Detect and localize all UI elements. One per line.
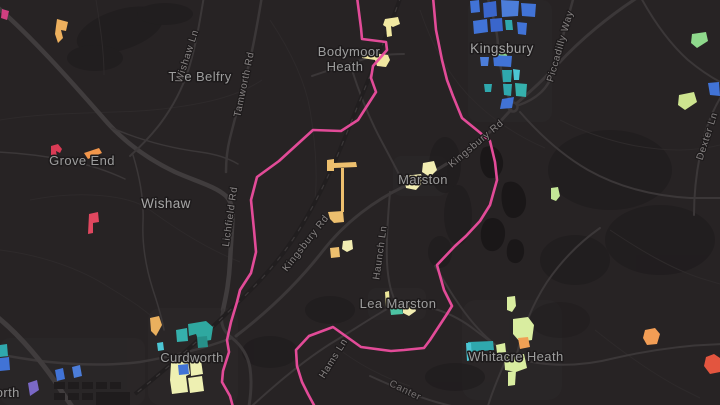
land-parcel[interactable]: [501, 0, 519, 17]
land-parcel[interactable]: [197, 336, 208, 348]
land-parcel[interactable]: [508, 371, 516, 386]
place-label-bodymoor: Bodymoor: [318, 44, 381, 59]
place-label-grove-end: Grove End: [49, 153, 115, 168]
land-parcel[interactable]: [490, 18, 503, 32]
land-parcel[interactable]: [341, 168, 344, 212]
land-parcel[interactable]: [505, 20, 513, 30]
land-parcel[interactable]: [484, 84, 492, 92]
land-parcel[interactable]: [493, 55, 512, 67]
land-parcel[interactable]: [521, 3, 536, 17]
land-parcel[interactable]: [473, 19, 488, 34]
place-label-kingsbury: Kingsbury: [470, 41, 534, 56]
land-parcel[interactable]: [470, 0, 480, 13]
land-parcel[interactable]: [330, 247, 340, 258]
place-label-marston: Marston: [398, 172, 448, 187]
place-label-bodymoor-heath: Heath: [327, 59, 364, 74]
place-label-minworth-partial: worth: [0, 385, 20, 400]
land-parcel[interactable]: [480, 57, 489, 66]
place-label-lea-marston: Lea Marston: [360, 296, 437, 311]
land-parcel[interactable]: [0, 357, 10, 371]
land-parcel[interactable]: [178, 364, 189, 375]
land-parcel[interactable]: [503, 84, 512, 96]
map-canvas[interactable]: Bodymoor Heath Kingsbury The Belfry Grov…: [0, 0, 720, 405]
land-parcel[interactable]: [502, 70, 512, 82]
place-label-curdworth: Curdworth: [160, 350, 224, 365]
land-parcel[interactable]: [188, 376, 204, 393]
land-parcel[interactable]: [483, 1, 497, 18]
place-label-wishaw: Wishaw: [141, 196, 191, 211]
land-parcel[interactable]: [517, 22, 527, 35]
land-parcel[interactable]: [513, 69, 520, 80]
land-parcel[interactable]: [176, 328, 188, 342]
land-parcel[interactable]: [515, 83, 527, 97]
land-parcel[interactable]: [0, 344, 8, 357]
land-parcel[interactable]: [518, 337, 530, 349]
place-label-whitacre-heath: Whitacre Heath: [468, 349, 563, 364]
